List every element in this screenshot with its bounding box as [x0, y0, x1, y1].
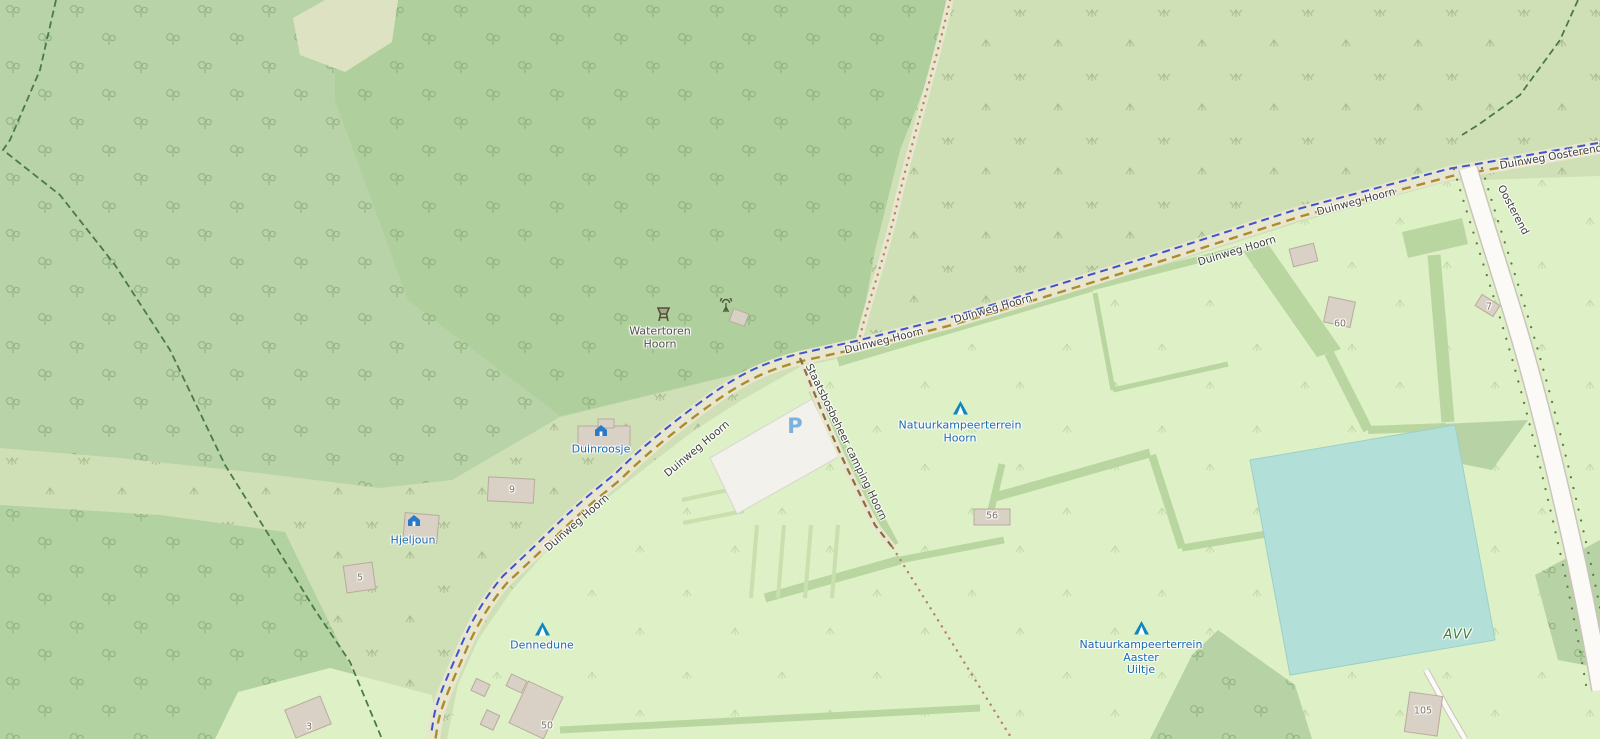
housenumber-60: 60: [1334, 320, 1346, 331]
housenumber-105: 105: [1414, 707, 1432, 718]
housenumber-7: 7: [1486, 303, 1492, 314]
label-watertoren: Watertoren Hoorn: [629, 325, 691, 350]
map-canvas[interactable]: Watertoren Hoorn Duinroosje Hjeljoun Den…: [0, 0, 1600, 739]
housenumber-56: 56: [986, 512, 998, 523]
housenumber-3: 3: [306, 723, 312, 734]
label-nk-hoorn: Natuurkampeerterrein Hoorn: [899, 419, 1022, 444]
label-avv: AVV: [1443, 629, 1472, 644]
label-nk-aaster-uiltje: Natuurkampeerterrein Aaster Uiltje: [1080, 639, 1203, 677]
housenumber-50: 50: [541, 722, 553, 733]
housenumber-5: 5: [357, 574, 363, 585]
parking-symbol: P: [787, 414, 802, 438]
label-duinroosje: Duinroosje: [572, 444, 631, 457]
housenumber-9: 9: [509, 486, 515, 497]
label-dennedune: Dennedune: [510, 640, 574, 653]
map-layers-svg: [0, 0, 1600, 739]
label-hjeljoun: Hjeljoun: [391, 535, 436, 548]
